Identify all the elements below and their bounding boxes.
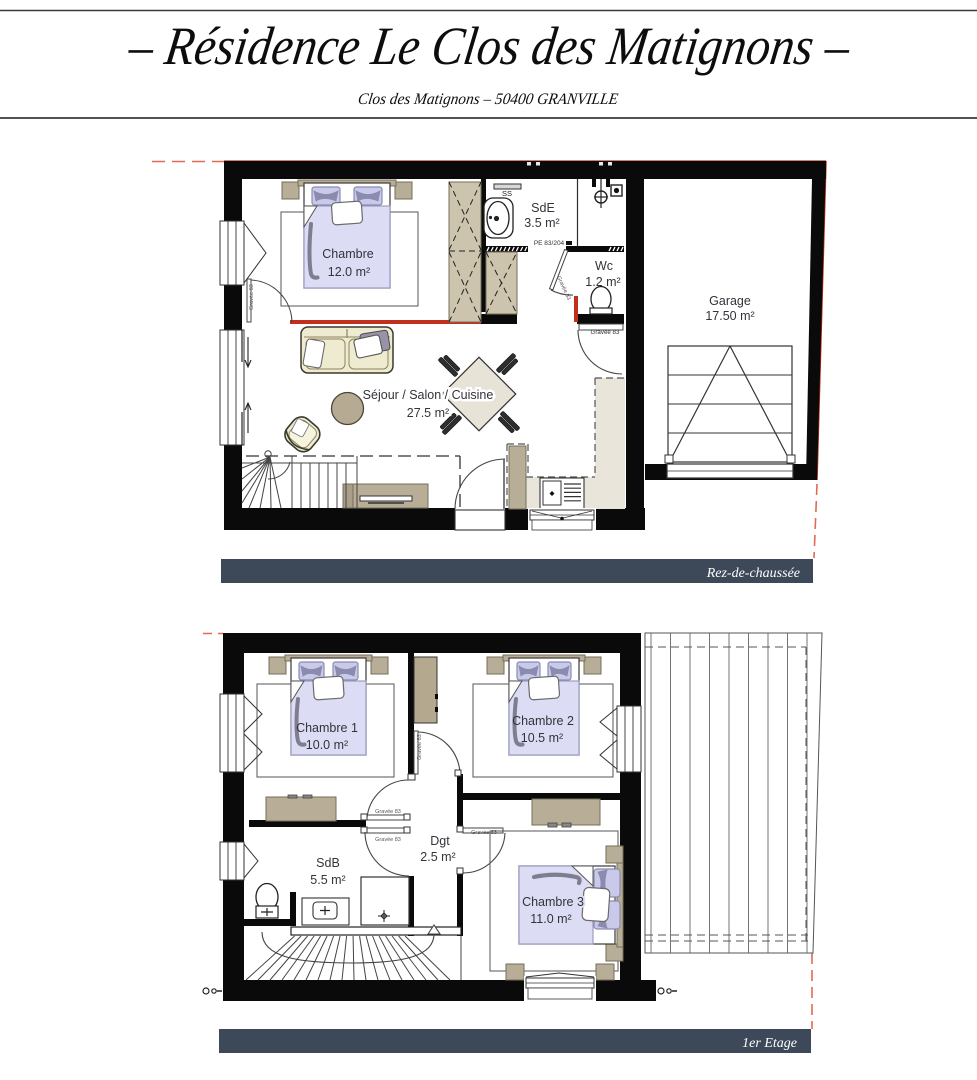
svg-text:3.5 m²: 3.5 m² <box>524 216 559 230</box>
svg-text:Wc: Wc <box>595 259 613 273</box>
svg-text:Séjour / Salon / Cuisine: Séjour / Salon / Cuisine <box>363 388 494 402</box>
svg-text:Dgt: Dgt <box>430 834 450 848</box>
svg-text:Chambre: Chambre <box>322 247 373 261</box>
svg-text:10.0 m²: 10.0 m² <box>306 738 348 752</box>
svg-text:17.50 m²: 17.50 m² <box>705 309 754 323</box>
svg-text:Chambre 3: Chambre 3 <box>522 895 584 909</box>
svg-text:SdE: SdE <box>531 201 555 215</box>
svg-text:Gravée 83: Gravée 83 <box>375 809 401 815</box>
svg-text:11.0 m²: 11.0 m² <box>530 912 571 926</box>
svg-text:12.0 m²: 12.0 m² <box>328 265 370 279</box>
svg-text:SdB: SdB <box>316 856 340 870</box>
svg-text:1er Etage: 1er Etage <box>742 1036 797 1051</box>
svg-text:27.5 m²: 27.5 m² <box>407 406 449 420</box>
svg-text:10.5 m²: 10.5 m² <box>521 731 563 745</box>
svg-text:SS: SS <box>502 189 512 198</box>
svg-text:Gravée 83: Gravée 83 <box>417 734 423 760</box>
svg-text:Gravée 83: Gravée 83 <box>249 284 255 310</box>
svg-text:2.5 m²: 2.5 m² <box>420 850 455 864</box>
svg-text:Rez-de-chaussée: Rez-de-chaussée <box>706 566 800 581</box>
svg-text:– Résidence Le Clos des Matign: – Résidence Le Clos des Matignons – <box>124 16 854 76</box>
svg-text:Chambre 1: Chambre 1 <box>296 721 358 735</box>
svg-text:Garage: Garage <box>709 294 751 308</box>
svg-text:5.5 m²: 5.5 m² <box>310 873 345 887</box>
svg-text:Gravée 83: Gravée 83 <box>375 837 401 843</box>
svg-text:Clos des Matignons – 50400 GRA: Clos des Matignons – 50400 GRANVILLE <box>357 91 620 108</box>
svg-text:PE 83/204: PE 83/204 <box>534 240 565 247</box>
svg-text:Gravée 83: Gravée 83 <box>591 329 620 336</box>
svg-text:Chambre 2: Chambre 2 <box>512 714 574 728</box>
